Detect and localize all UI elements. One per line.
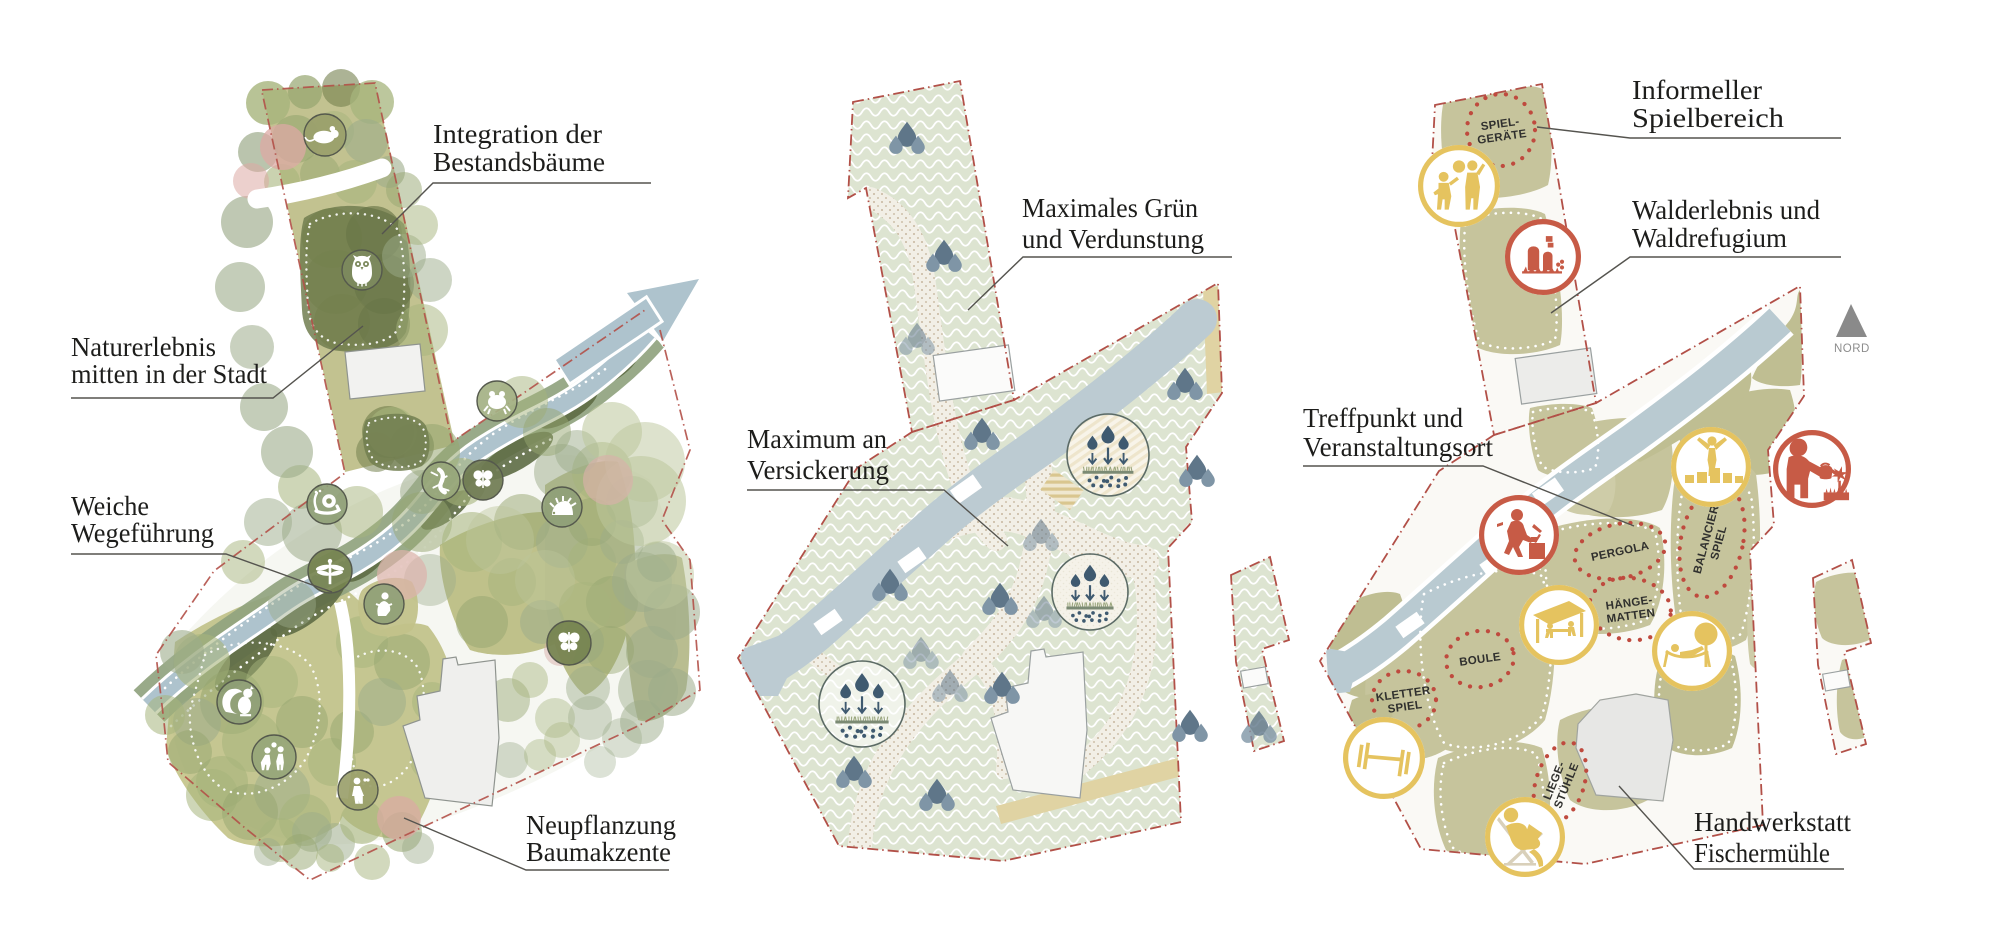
svg-text:Neupflanzung: Neupflanzung <box>526 810 676 840</box>
svg-text:Maximum an: Maximum an <box>747 424 887 454</box>
svg-text:Walderlebnis und: Walderlebnis und <box>1632 195 1820 225</box>
svg-text:Handwerkstatt: Handwerkstatt <box>1694 807 1851 837</box>
svg-text:NORD: NORD <box>1834 343 1870 355</box>
svg-text:Wegeführung: Wegeführung <box>71 518 214 548</box>
svg-text:Integration der: Integration der <box>433 119 602 149</box>
svg-text:Versickerung: Versickerung <box>747 455 889 485</box>
svg-text:und Verdunstung: und Verdunstung <box>1022 224 1204 254</box>
svg-text:mitten in der Stadt: mitten in der Stadt <box>71 359 267 389</box>
svg-text:Veranstaltungsort: Veranstaltungsort <box>1303 432 1493 462</box>
svg-text:Fischermühle: Fischermühle <box>1694 838 1830 868</box>
svg-text:Spielbereich: Spielbereich <box>1632 103 1785 133</box>
svg-text:Bestandsbäume: Bestandsbäume <box>433 147 605 177</box>
svg-text:Naturerlebnis: Naturerlebnis <box>71 332 216 362</box>
svg-text:Informeller: Informeller <box>1632 75 1762 105</box>
svg-text:Maximales Grün: Maximales Grün <box>1022 193 1198 223</box>
svg-text:Weiche: Weiche <box>71 491 149 521</box>
svg-text:Treffpunkt und: Treffpunkt und <box>1303 403 1463 433</box>
svg-text:Waldrefugium: Waldrefugium <box>1632 223 1787 253</box>
svg-text:Baumakzente: Baumakzente <box>526 837 671 867</box>
